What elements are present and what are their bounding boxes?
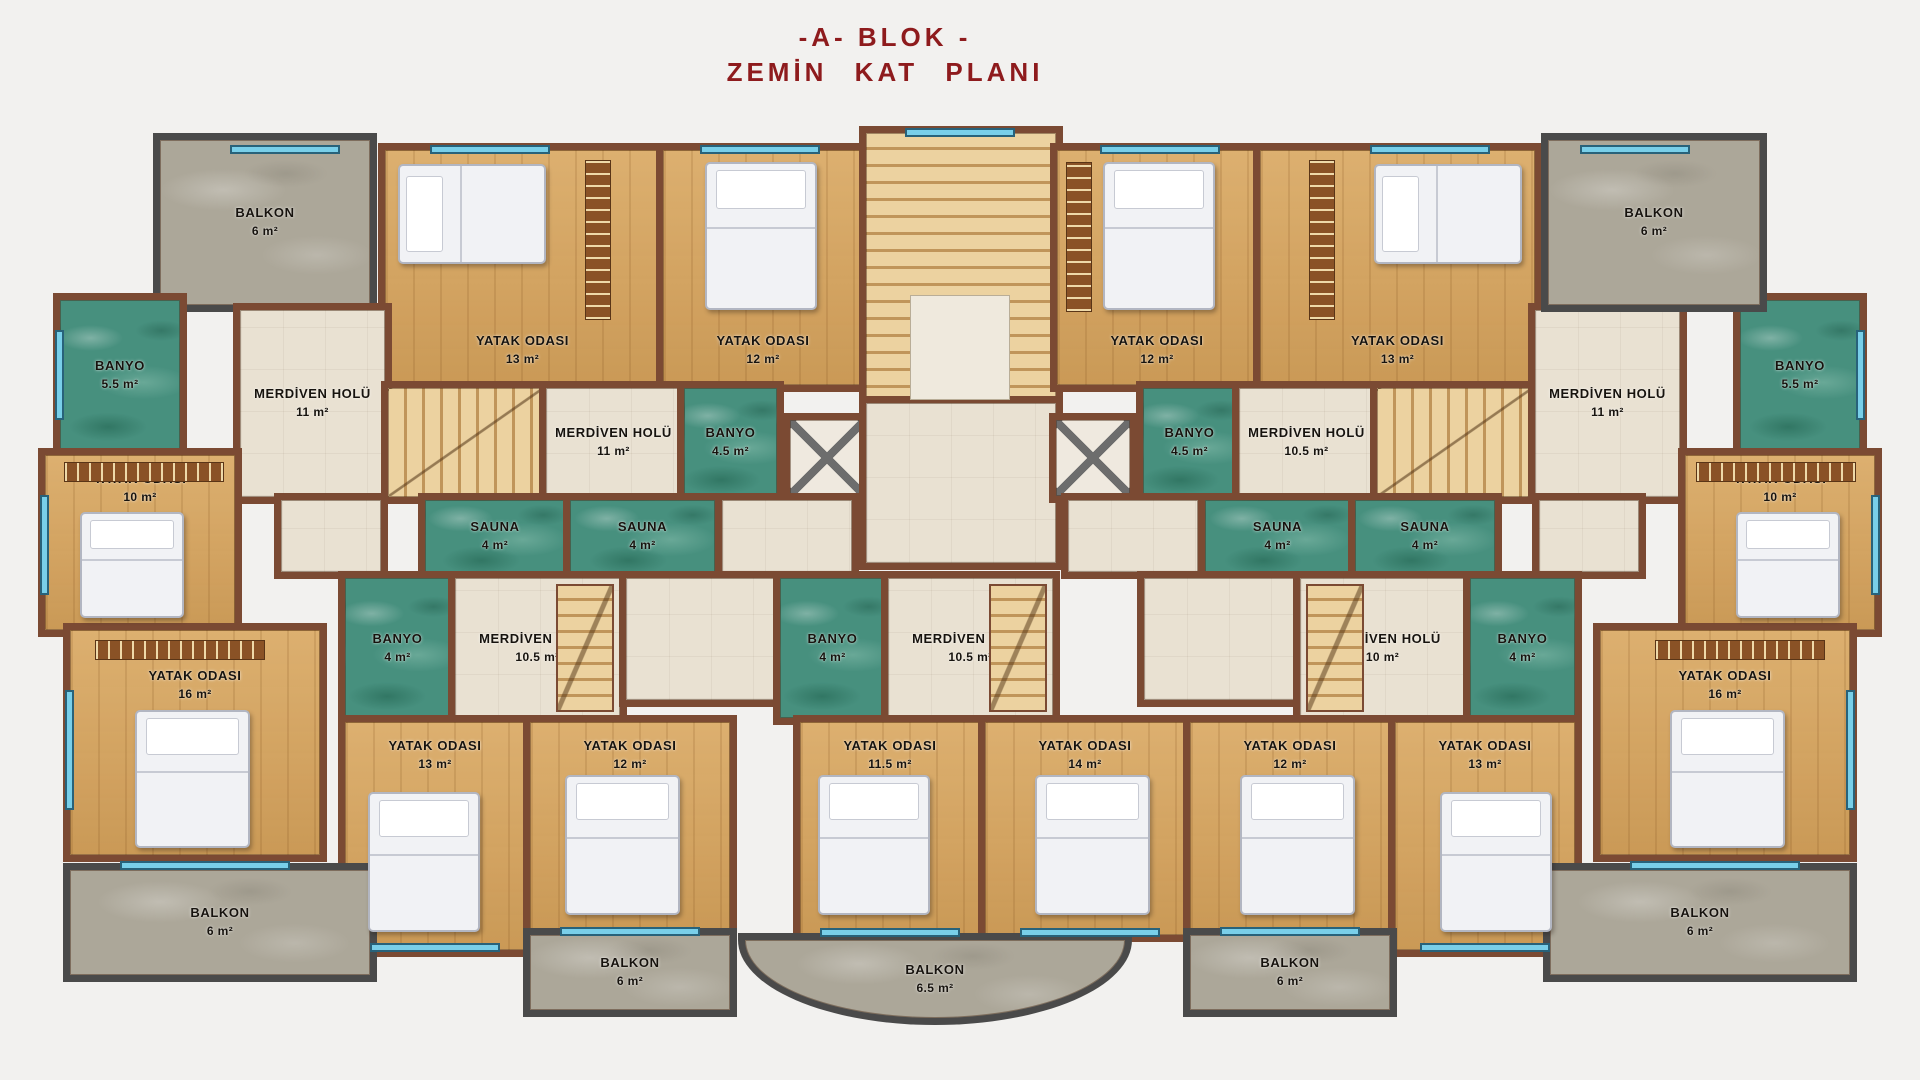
room-banyo45-r: BANYO4.5 m² [1143, 388, 1236, 497]
room-banyo4-c: BANYO4 m² [780, 578, 885, 718]
bed-icon [1440, 792, 1552, 932]
bed-icon [1103, 162, 1215, 310]
room-label-banyo55-r: BANYO5.5 m² [1775, 357, 1825, 393]
room-balkon-tr: BALKON6 m² [1548, 140, 1760, 305]
room-label-balkon-tl: BALKON6 m² [235, 204, 294, 240]
room-merd11-cl: MERDİVEN HOLÜ11 m² [546, 388, 681, 497]
room-label-banyo45-l: BANYO4.5 m² [706, 424, 756, 460]
window-icon [1871, 495, 1880, 595]
window-icon [700, 145, 820, 154]
window-icon [1846, 690, 1855, 810]
window-icon [65, 690, 74, 810]
room-corridor-r1 [1068, 500, 1198, 572]
floor-plan: -A- BLOK - ZEMİN KAT PLANI BALKON6 m²YAT… [0, 0, 1920, 1080]
bed-icon [1240, 775, 1355, 915]
room-corridor-l1 [722, 500, 852, 572]
room-merd11-far-r: MERDİVEN HOLÜ11 m² [1535, 310, 1680, 497]
window-icon [820, 928, 960, 937]
room-label-banyo4-r: BANYO4 m² [1498, 630, 1548, 666]
plan-title-floor: ZEMİN KAT PLANI [727, 55, 1044, 90]
window-icon [1220, 927, 1360, 936]
room-sauna-r2: SAUNA4 m² [1205, 500, 1350, 572]
room-balkon-brc: BALKON6 m² [1190, 935, 1390, 1010]
room-label-yatak13-bl: YATAK ODASI13 m² [388, 737, 481, 773]
room-label-sauna-r1: SAUNA4 m² [1400, 518, 1449, 554]
room-label-balkon-blc: BALKON6 m² [600, 954, 659, 990]
room-banyo45-l: BANYO4.5 m² [684, 388, 777, 497]
room-banyo55-l: BANYO5.5 m² [60, 300, 180, 450]
room-label-balkon-tr: BALKON6 m² [1624, 204, 1683, 240]
bed-icon [368, 792, 480, 932]
room-label-yatak12-br: YATAK ODASI12 m² [1243, 737, 1336, 773]
room-label-yatak13-br: YATAK ODASI13 m² [1438, 737, 1531, 773]
room-landing-center [866, 403, 1056, 563]
room-merd11-far-l: MERDİVEN HOLÜ11 m² [240, 310, 385, 497]
wardrobe-icon [64, 462, 224, 482]
room-label-yatak14-c: YATAK ODASI14 m² [1038, 737, 1131, 773]
bed-icon [135, 710, 250, 848]
room-label-sauna-r2: SAUNA4 m² [1253, 518, 1302, 554]
wardrobe-icon [1309, 160, 1335, 320]
plan-title: -A- BLOK - ZEMİN KAT PLANI [727, 20, 1044, 90]
bed-icon [705, 162, 817, 310]
window-icon [40, 495, 49, 595]
room-label-sauna-l1: SAUNA4 m² [470, 518, 519, 554]
room-stair-r1 [1377, 388, 1532, 497]
room-shaft-l [790, 420, 864, 496]
bed-icon [818, 775, 930, 915]
wardrobe-icon [95, 640, 265, 660]
window-icon [1420, 943, 1550, 952]
window-icon [55, 330, 64, 420]
window-icon [1856, 330, 1865, 420]
room-corridor-r3 [1144, 578, 1294, 700]
room-label-yatak13-tl: YATAK ODASI13 m² [476, 332, 569, 368]
bed-icon [398, 164, 546, 264]
bed-icon [1374, 164, 1522, 264]
window-icon [560, 927, 700, 936]
room-sauna-l2: SAUNA4 m² [570, 500, 715, 572]
room-label-banyo4-l: BANYO4 m² [373, 630, 423, 666]
room-sauna-l1: SAUNA4 m² [425, 500, 565, 572]
window-icon [1100, 145, 1220, 154]
window-icon [430, 145, 550, 154]
bed-icon [80, 512, 184, 618]
bed-icon [565, 775, 680, 915]
room-label-banyo45-r: BANYO4.5 m² [1165, 424, 1215, 460]
room-label-merd11-far-l: MERDİVEN HOLÜ11 m² [254, 385, 371, 421]
room-balkon-bl: BALKON6 m² [70, 870, 370, 975]
room-corridor-l3 [626, 578, 776, 700]
wardrobe-icon [1655, 640, 1825, 660]
room-corridor-r2 [1539, 500, 1639, 572]
room-banyo4-r: BANYO4 m² [1470, 578, 1575, 718]
room-label-balkon-brc: BALKON6 m² [1260, 954, 1319, 990]
window-icon [1020, 928, 1160, 937]
room-merd105-tr: MERDİVEN HOLÜ10.5 m² [1239, 388, 1374, 497]
room-label-balkon-c: BALKON6.5 m² [905, 961, 964, 997]
room-label-banyo4-c: BANYO4 m² [808, 630, 858, 666]
window-icon [370, 943, 500, 952]
room-stair-l1 [388, 388, 543, 497]
stairs-icon [556, 584, 614, 712]
room-label-yatak12-bl: YATAK ODASI12 m² [583, 737, 676, 773]
room-banyo55-r: BANYO5.5 m² [1740, 300, 1860, 450]
bed-icon [1736, 512, 1840, 618]
room-sauna-r1: SAUNA4 m² [1355, 500, 1495, 572]
room-banyo4-l: BANYO4 m² [345, 578, 450, 718]
stair-landing-icon [910, 295, 1010, 400]
room-label-sauna-l2: SAUNA4 m² [618, 518, 667, 554]
wardrobe-icon [1696, 462, 1856, 482]
room-label-yatak12-tr: YATAK ODASI12 m² [1110, 332, 1203, 368]
window-icon [1370, 145, 1490, 154]
room-balkon-br: BALKON6 m² [1550, 870, 1850, 975]
room-label-yatak13-tr: YATAK ODASI13 m² [1351, 332, 1444, 368]
window-icon [120, 861, 290, 870]
room-label-merd105-tr: MERDİVEN HOLÜ10.5 m² [1248, 424, 1365, 460]
window-icon [230, 145, 340, 154]
room-balkon-c: BALKON6.5 m² [745, 940, 1125, 1018]
wardrobe-icon [1066, 162, 1092, 312]
stairs-icon [1306, 584, 1364, 712]
room-label-yatak16-r: YATAK ODASI16 m² [1678, 667, 1771, 703]
room-label-yatak12-tl: YATAK ODASI12 m² [716, 332, 809, 368]
room-label-yatak115-c: YATAK ODASI11.5 m² [843, 737, 936, 773]
room-balkon-blc: BALKON6 m² [530, 935, 730, 1010]
stairs-icon [989, 584, 1047, 712]
window-icon [1580, 145, 1690, 154]
window-icon [905, 128, 1015, 137]
room-label-balkon-bl: BALKON6 m² [190, 904, 249, 940]
room-label-merd11-far-r: MERDİVEN HOLÜ11 m² [1549, 385, 1666, 421]
room-corridor-l2 [281, 500, 381, 572]
room-balkon-tl: BALKON6 m² [160, 140, 370, 305]
room-label-banyo55-l: BANYO5.5 m² [95, 357, 145, 393]
room-label-balkon-br: BALKON6 m² [1670, 904, 1729, 940]
plan-title-block: -A- BLOK - [727, 20, 1044, 55]
window-icon [1630, 861, 1800, 870]
room-label-merd11-cl: MERDİVEN HOLÜ11 m² [555, 424, 672, 460]
room-shaft-r [1056, 420, 1130, 496]
room-label-yatak16-l: YATAK ODASI16 m² [148, 667, 241, 703]
bed-icon [1035, 775, 1150, 915]
wardrobe-icon [585, 160, 611, 320]
bed-icon [1670, 710, 1785, 848]
